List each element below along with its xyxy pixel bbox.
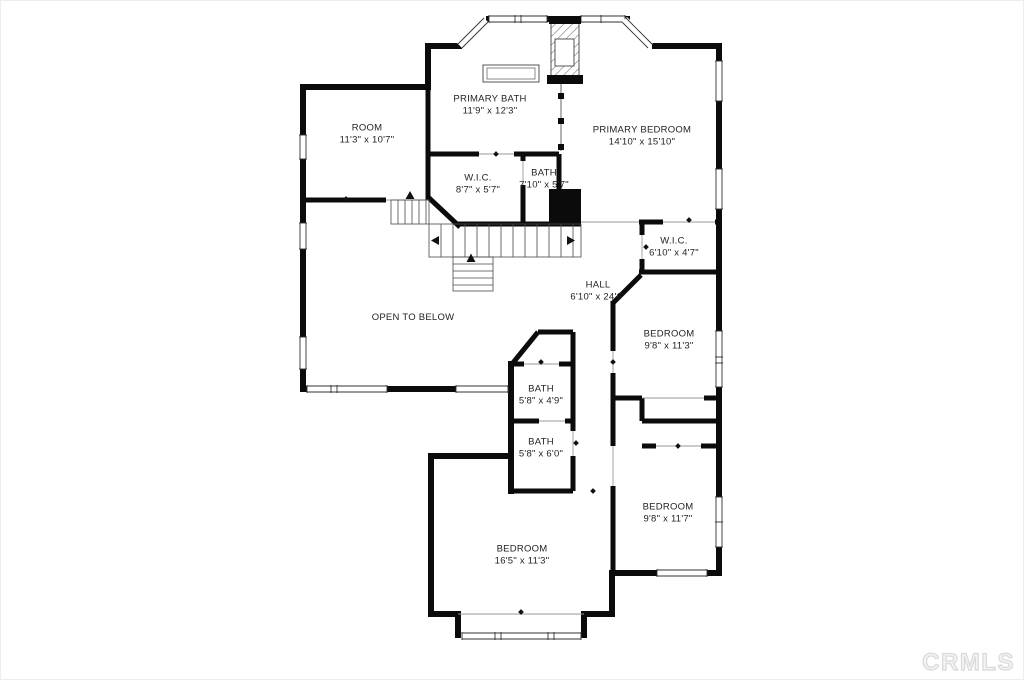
room-dimensions: 11'3" x 10'7": [340, 135, 395, 147]
room-label-room: ROOM 11'3" x 10'7": [340, 123, 395, 148]
room-dimensions: 9'8" x 11'7": [643, 514, 694, 526]
room-label-bath-2: BATH 5'8" x 6'0": [519, 437, 563, 462]
room-name: BATH: [519, 437, 563, 449]
room-dimensions: 14'10" x 15'10": [593, 137, 691, 149]
room-name: W.I.C.: [456, 173, 500, 185]
room-dimensions: 16'5" x 11'3": [495, 556, 550, 568]
room-dimensions: 9'8" x 11'3": [644, 341, 695, 353]
room-label-bedroom-1: BEDROOM 9'8" x 11'3": [644, 329, 695, 354]
room-name: BEDROOM: [495, 544, 550, 556]
room-label-bedroom-2: BEDROOM 9'8" x 11'7": [643, 502, 694, 527]
room-name: ROOM: [340, 123, 395, 135]
bay-diagonal-window-left: [457, 17, 489, 49]
room-label-hall: HALL 6'10" x 24'6": [570, 280, 625, 305]
room-name: PRIMARY BEDROOM: [593, 125, 691, 137]
room-dimensions: 7'10" x 5'7": [519, 180, 569, 192]
room-dimensions: 8'7" x 5'7": [456, 185, 500, 197]
room-name: BATH: [519, 168, 569, 180]
room-name: OPEN TO BELOW: [372, 312, 455, 324]
crmls-watermark: CRMLS: [922, 649, 1015, 677]
chase-block: [549, 189, 581, 224]
room-name: BATH: [519, 384, 563, 396]
bay-window-bottom: [462, 632, 581, 640]
bay-diagonal-window-right: [621, 17, 653, 49]
room-label-wic-2: W.I.C. 6'10" x 4'7": [649, 236, 699, 261]
room-name: PRIMARY BATH: [453, 94, 526, 106]
room-name: HALL: [570, 280, 625, 292]
room-label-primary-bath: PRIMARY BATH 11'9" x 12'3": [453, 94, 526, 119]
room-dimensions: 6'10" x 24'6": [570, 292, 625, 304]
room-label-primary-bedroom: PRIMARY BEDROOM 14'10" x 15'10": [593, 125, 691, 150]
floor-plan-page: PRIMARY BATH 11'9" x 12'3" ROOM 11'3" x …: [0, 0, 1024, 680]
post-line: [558, 83, 564, 151]
room-label-bath-upper: BATH 7'10" x 5'7": [519, 168, 569, 193]
room-dimensions: 6'10" x 4'7": [649, 248, 699, 260]
room-label-bedroom-3: BEDROOM 16'5" x 11'3": [495, 544, 550, 569]
room-label-open-to-below: OPEN TO BELOW: [372, 312, 455, 324]
room-dimensions: 5'8" x 6'0": [519, 449, 563, 461]
room-dimensions: 11'9" x 12'3": [453, 106, 526, 118]
room-label-wic-primary: W.I.C. 8'7" x 5'7": [456, 173, 500, 198]
room-name: W.I.C.: [649, 236, 699, 248]
room-label-bath-1: BATH 5'8" x 4'9": [519, 384, 563, 409]
room-name: BEDROOM: [643, 502, 694, 514]
room-name: BEDROOM: [644, 329, 695, 341]
room-dimensions: 5'8" x 4'9": [519, 396, 563, 408]
bathtub-fixture: [483, 65, 539, 82]
chimney-hatched: [547, 16, 583, 84]
